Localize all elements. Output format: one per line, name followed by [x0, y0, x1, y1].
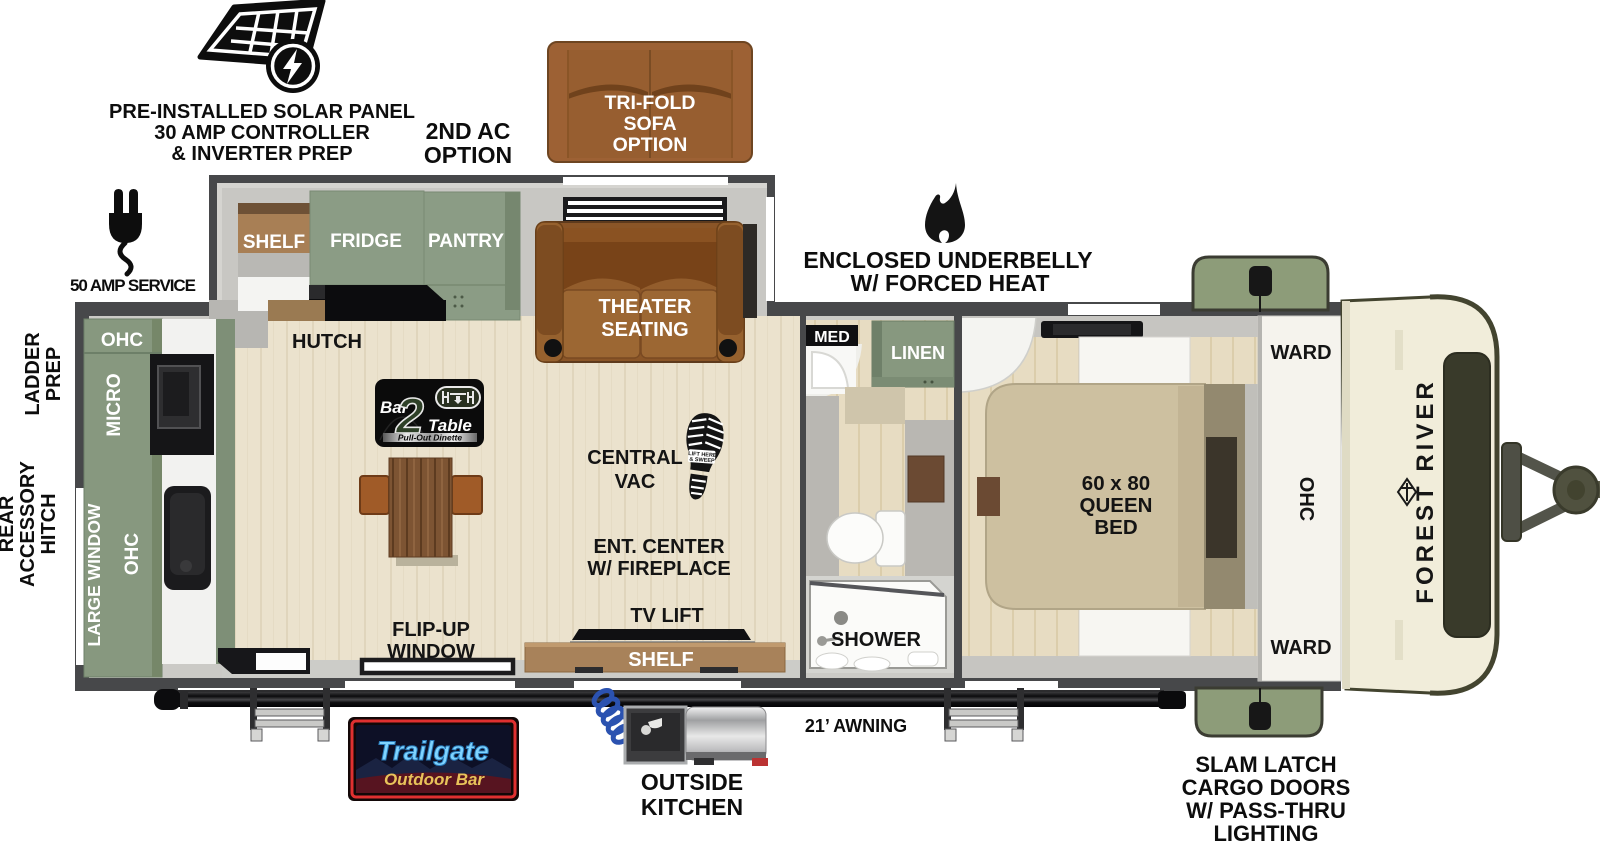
svg-text:QUEEN: QUEEN [1080, 494, 1153, 517]
svg-text:60 x 80: 60 x 80 [1082, 472, 1150, 495]
svg-text:ACCESSORY: ACCESSORY [17, 460, 39, 587]
svg-text:2ND AC: 2ND AC [426, 118, 511, 144]
svg-text:SEATING: SEATING [601, 319, 688, 341]
svg-text:FRIDGE: FRIDGE [330, 231, 402, 252]
svg-text:HITCH: HITCH [38, 493, 60, 554]
svg-text:BED: BED [1094, 516, 1137, 539]
svg-text:MICRO: MICRO [104, 373, 125, 436]
svg-text:LIGHTING: LIGHTING [1213, 821, 1318, 846]
svg-text:OUTSIDE: OUTSIDE [641, 769, 743, 795]
svg-text:FLIP-UP: FLIP-UP [392, 619, 470, 641]
svg-text:CENTRAL: CENTRAL [587, 447, 683, 469]
svg-text:PRE-INSTALLED SOLAR PANEL: PRE-INSTALLED SOLAR PANEL [109, 101, 415, 123]
svg-text:MED: MED [814, 329, 850, 346]
svg-text:Trailgate: Trailgate [377, 736, 489, 766]
svg-text:TRI-FOLD: TRI-FOLD [605, 92, 696, 114]
svg-text:LINEN: LINEN [891, 343, 945, 363]
svg-text:PANTRY: PANTRY [428, 231, 504, 252]
svg-text:FOREST RIVER: FOREST RIVER [1412, 378, 1439, 603]
svg-text:THEATER: THEATER [599, 296, 693, 318]
svg-text:W/ PASS-THRU: W/ PASS-THRU [1186, 798, 1346, 823]
svg-text:OHC: OHC [101, 330, 144, 351]
svg-text:WARD: WARD [1270, 637, 1331, 659]
svg-text:TV LIFT: TV LIFT [630, 605, 703, 627]
svg-text:LARGE WINDOW: LARGE WINDOW [84, 503, 104, 646]
svg-text:SHELF: SHELF [628, 649, 694, 671]
svg-text:REAR: REAR [0, 495, 18, 552]
svg-text:& INVERTER PREP: & INVERTER PREP [171, 143, 352, 165]
svg-text:OPTION: OPTION [424, 142, 512, 168]
svg-text:W/ FIREPLACE: W/ FIREPLACE [587, 558, 730, 580]
svg-text:Pull-Out Dinette: Pull-Out Dinette [398, 433, 462, 443]
svg-text:SLAM LATCH: SLAM LATCH [1195, 752, 1336, 777]
svg-text:CARGO DOORS: CARGO DOORS [1182, 775, 1351, 800]
svg-text:W/ FORCED HEAT: W/ FORCED HEAT [851, 270, 1050, 296]
svg-text:SOFA: SOFA [623, 113, 676, 135]
svg-text:PREP: PREP [43, 347, 65, 401]
svg-text:30 AMP CONTROLLER: 30 AMP CONTROLLER [154, 122, 370, 144]
svg-text:HUTCH: HUTCH [292, 331, 362, 353]
svg-text:OHC: OHC [122, 533, 143, 576]
svg-text:WARD: WARD [1270, 342, 1331, 364]
svg-text:21’ AWNING: 21’ AWNING [805, 716, 907, 736]
svg-text:KITCHEN: KITCHEN [641, 794, 743, 820]
svg-text:ENT. CENTER: ENT. CENTER [593, 536, 725, 558]
svg-text:SHELF: SHELF [243, 232, 305, 253]
svg-text:Outdoor Bar: Outdoor Bar [384, 770, 485, 789]
svg-text:LADDER: LADDER [22, 332, 44, 416]
svg-text:SHOWER: SHOWER [831, 629, 922, 651]
svg-text:50 AMP SERVICE: 50 AMP SERVICE [70, 276, 196, 295]
svg-text:OHC: OHC [1295, 477, 1317, 521]
svg-text:OPTION: OPTION [613, 134, 688, 156]
svg-text:VAC: VAC [615, 471, 656, 493]
